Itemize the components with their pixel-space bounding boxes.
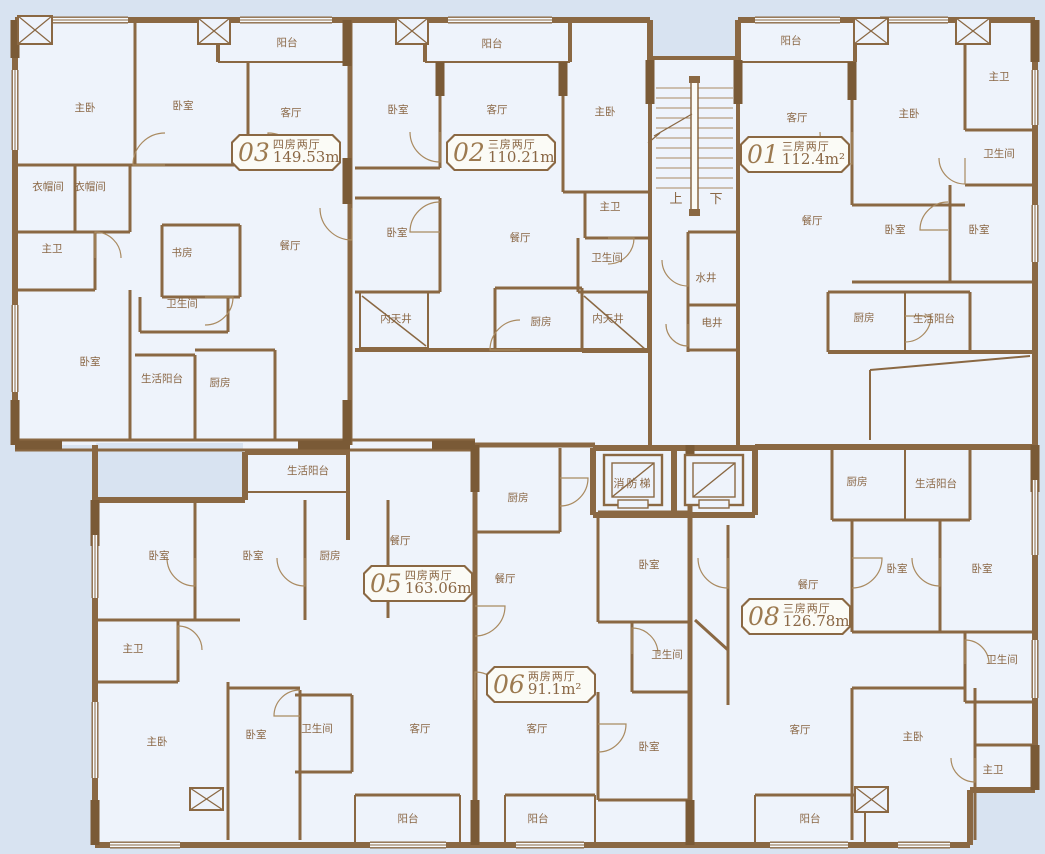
- room-label-unit-08: 卫生间: [986, 653, 1018, 666]
- room-label-unit-08: 生活阳台: [915, 477, 957, 490]
- room-label-unit-05: 客厅: [410, 722, 431, 735]
- unit-03-area: 149.53m²: [273, 150, 346, 166]
- room-label-unit-05: 阳台: [398, 812, 419, 825]
- unit-02-label: 02 三房两厅 110.21m²: [446, 134, 556, 171]
- room-label-unit-08: 卧室: [887, 562, 908, 575]
- unit-08-number: 08: [748, 604, 780, 629]
- room-label-unit-01: 主卫: [989, 71, 1010, 83]
- unit-01-number: 01: [747, 142, 779, 167]
- stair-rail: [691, 80, 698, 212]
- floor-plan-canvas: 上下水井电井消防梯阳台客厅主卧主卫卫生间餐厅卧室卧室厨房生活阳台阳台卧室客厅主卧…: [0, 0, 1045, 854]
- room-label-unit-02: 阳台: [482, 37, 503, 50]
- unit-06-label-frame: 06 两房两厅 91.1m²: [488, 668, 594, 701]
- room-label-unit-03: 书房: [172, 246, 193, 259]
- unit-05-number: 05: [370, 571, 402, 596]
- room-label-unit-05: 卫生间: [301, 722, 333, 735]
- unit-01-area: 112.4m²: [782, 152, 845, 168]
- room-label-unit-05: 卧室: [149, 549, 170, 562]
- room-label-unit-03: 阳台: [277, 36, 298, 49]
- unit-01-label: 01 三房两厅 112.4m²: [740, 136, 850, 173]
- unit-06-number: 06: [493, 672, 525, 697]
- room-label-unit-05: 主卫: [123, 643, 144, 655]
- room-label-unit-06: 客厅: [527, 722, 548, 735]
- room-label-unit-08: 阳台: [800, 812, 821, 825]
- room-label-unit-02: 主卧: [595, 105, 616, 118]
- room-label-unit-06: 卫生间: [651, 648, 683, 661]
- stair-down-label: 下: [709, 192, 722, 207]
- room-label-unit-03: 卧室: [80, 355, 101, 368]
- stair-up-label: 上: [669, 192, 682, 207]
- room-label-unit-01: 主卧: [899, 107, 920, 120]
- room-label-unit-02: 卧室: [387, 226, 408, 239]
- unit-05-area: 163.06m²: [405, 581, 478, 597]
- room-label-unit-01: 生活阳台: [913, 312, 955, 325]
- room-label-unit-08: 厨房: [847, 475, 868, 488]
- room-label-unit-08: 卧室: [972, 562, 993, 575]
- unit-06-label: 06 两房两厅 91.1m²: [486, 666, 596, 703]
- notch-bottom-right: [972, 792, 1038, 847]
- room-label-unit-03: 衣帽间: [74, 180, 106, 193]
- room-label-unit-03: 主卧: [75, 101, 96, 114]
- room-label-unit-05: 卧室: [243, 549, 264, 562]
- electric-well-label: 电井: [702, 316, 723, 329]
- room-label-unit-03: 衣帽间: [32, 180, 64, 193]
- stair-rail-cap: [689, 76, 700, 83]
- unit-03-number: 03: [238, 140, 270, 165]
- room-label-unit-06: 卧室: [639, 740, 660, 753]
- unit-02-label-frame: 02 三房两厅 110.21m²: [448, 136, 554, 169]
- room-label-unit-06: 阳台: [528, 812, 549, 825]
- unit-08-label: 08 三房两厅 126.78m²: [741, 598, 851, 635]
- room-label-unit-05: 餐厅: [390, 534, 411, 547]
- unit-01-label-frame: 01 三房两厅 112.4m²: [742, 138, 848, 171]
- room-label-unit-08: 主卧: [903, 730, 924, 743]
- stair-rail-cap: [689, 209, 700, 216]
- room-label-unit-08: 客厅: [790, 723, 811, 736]
- room-label-unit-02: 内天井: [380, 312, 412, 325]
- room-label-unit-02: 客厅: [487, 103, 508, 116]
- room-label-unit-06: 餐厅: [495, 572, 516, 585]
- room-label-unit-01: 客厅: [787, 111, 808, 124]
- unit-06-area: 91.1m²: [528, 682, 582, 698]
- room-label-unit-06: 卧室: [639, 558, 660, 571]
- floor-plan-svg: 上下水井电井消防梯阳台客厅主卧主卫卫生间餐厅卧室卧室厨房生活阳台阳台卧室客厅主卧…: [0, 0, 1045, 854]
- unit-08-area: 126.78m²: [783, 614, 856, 630]
- unit-03-label-frame: 03 四房两厅 149.53m²: [233, 136, 339, 169]
- room-label-unit-01: 厨房: [854, 311, 875, 324]
- room-label-unit-05: 主卧: [147, 735, 168, 748]
- room-label-unit-02: 厨房: [531, 315, 552, 328]
- unit-05-label-frame: 05 四房两厅 163.06m²: [365, 567, 471, 600]
- room-label-unit-01: 餐厅: [802, 214, 823, 227]
- room-label-unit-02: 内天井: [592, 312, 624, 325]
- room-label-unit-01: 卫生间: [983, 147, 1015, 160]
- room-label-unit-02: 餐厅: [510, 231, 531, 244]
- room-label-unit-03: 主卫: [42, 243, 63, 255]
- room-label-unit-02: 卫生间: [591, 251, 623, 264]
- elevator-door-slot: [699, 500, 729, 508]
- room-label-unit-01: 阳台: [781, 34, 802, 47]
- room-label-unit-01: 卧室: [885, 223, 906, 236]
- elevator-door-slot: [618, 500, 648, 508]
- water-well-label: 水井: [696, 271, 717, 284]
- room-label-unit-05: 卧室: [246, 728, 267, 741]
- unit-03-label: 03 四房两厅 149.53m²: [231, 134, 341, 171]
- room-label-unit-08: 主卫: [983, 764, 1004, 776]
- room-label-unit-02: 卧室: [388, 103, 409, 116]
- room-label-unit-03: 卧室: [173, 99, 194, 112]
- room-label-unit-06: 厨房: [508, 491, 529, 504]
- unit-02-number: 02: [453, 140, 485, 165]
- room-label-unit-05: 厨房: [320, 549, 341, 562]
- room-label-unit-05: 生活阳台: [287, 464, 329, 477]
- room-label-unit-03: 餐厅: [280, 239, 301, 252]
- room-label-unit-03: 生活阳台: [141, 372, 183, 385]
- fire-elevator-label: 消防梯: [614, 476, 653, 490]
- room-label-unit-08: 餐厅: [798, 578, 819, 591]
- room-label-unit-03: 客厅: [281, 106, 302, 119]
- room-label-unit-03: 厨房: [210, 376, 231, 389]
- unit-02-area: 110.21m²: [488, 150, 561, 166]
- notch-core-top: [651, 17, 737, 57]
- room-label-unit-01: 卧室: [969, 223, 990, 236]
- unit-08-label-frame: 08 三房两厅 126.78m²: [743, 600, 849, 633]
- unit-05-label: 05 四房两厅 163.06m²: [363, 565, 473, 602]
- room-label-unit-02: 主卫: [600, 201, 621, 213]
- room-label-unit-03: 卫生间: [166, 297, 198, 310]
